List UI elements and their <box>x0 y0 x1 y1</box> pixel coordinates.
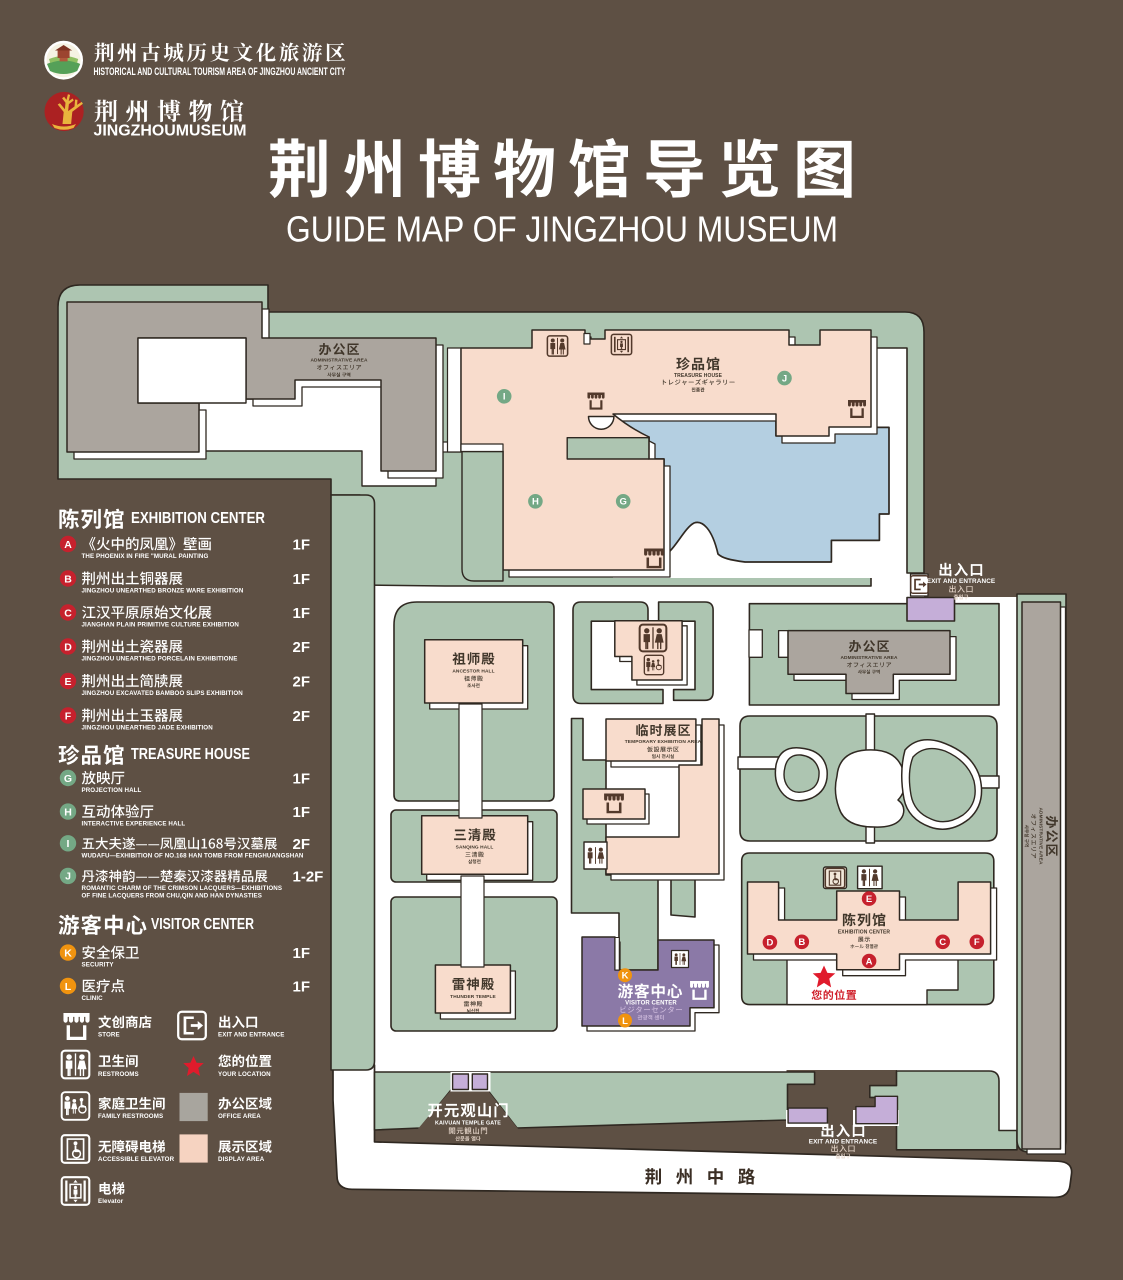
svg-text:INTERACTIVE EXPERIENCE HALL: INTERACTIVE EXPERIENCE HALL <box>82 821 186 828</box>
svg-text:L: L <box>622 1016 628 1027</box>
svg-text:SECURITY: SECURITY <box>82 962 115 969</box>
svg-text:GUIDE MAP OF JINGZHOU MUSEUM: GUIDE MAP OF JINGZHOU MUSEUM <box>286 209 838 250</box>
svg-text:RESTROOMS: RESTROOMS <box>98 1071 139 1078</box>
svg-text:VISITOR CENTER: VISITOR CENTER <box>625 1001 677 1007</box>
svg-text:E: E <box>866 894 872 905</box>
svg-text:JINGZHOUMUSEUM: JINGZHOUMUSEUM <box>94 123 247 140</box>
svg-text:2F: 2F <box>293 674 311 691</box>
svg-text:F: F <box>974 937 980 948</box>
svg-text:EXIT AND ENTRANCE: EXIT AND ENTRANCE <box>809 1139 878 1146</box>
svg-text:1F: 1F <box>293 804 311 821</box>
svg-text:ADMINISTRATIVE AREA: ADMINISTRATIVE AREA <box>1038 807 1044 864</box>
svg-text:THUNDER TEMPLE: THUNDER TEMPLE <box>450 994 496 1000</box>
svg-text:F: F <box>65 710 72 722</box>
svg-text:CLINIC: CLINIC <box>82 995 104 1002</box>
svg-text:I: I <box>503 392 506 403</box>
svg-text:JINGZHOU EXCAVATED BAMBOO SLIP: JINGZHOU EXCAVATED BAMBOO SLIPS EXHIBITI… <box>82 690 244 697</box>
svg-text:H: H <box>64 806 72 818</box>
svg-text:JINGZHOU UNEARTHED BRONZE WARE: JINGZHOU UNEARTHED BRONZE WARE EXHIBITIO… <box>82 588 244 595</box>
svg-text:WUDAFU—EXHIBITION OF NO.168 HA: WUDAFU—EXHIBITION OF NO.168 HAN TOMB FRO… <box>82 852 304 859</box>
svg-text:K: K <box>64 947 72 959</box>
svg-text:A: A <box>866 956 873 967</box>
svg-text:JINGZHOU UNEARTHED PORCELAIN E: JINGZHOU UNEARTHED PORCELAIN EXHIBITIONE <box>82 656 238 663</box>
svg-text:A: A <box>64 539 72 551</box>
svg-text:SANQING HALL: SANQING HALL <box>456 845 494 851</box>
svg-text:OF FINE LACQUERS FROM CHU,QIN: OF FINE LACQUERS FROM CHU,QIN AND HAN DY… <box>82 892 262 899</box>
svg-text:B: B <box>64 573 72 585</box>
svg-text:STORE: STORE <box>98 1032 120 1039</box>
svg-text:Elevator: Elevator <box>98 1198 124 1205</box>
svg-text:YOUR LOCATION: YOUR LOCATION <box>218 1071 271 1078</box>
svg-text:EXHIBITION CENTER: EXHIBITION CENTER <box>131 510 265 527</box>
svg-text:ANCESTOR HALL: ANCESTOR HALL <box>452 669 494 675</box>
svg-text:2F: 2F <box>293 836 311 853</box>
svg-text:E: E <box>64 676 71 688</box>
svg-text:EXIT AND ENTRANCE: EXIT AND ENTRANCE <box>218 1032 284 1039</box>
svg-text:FAMILY RESTROOMS: FAMILY RESTROOMS <box>98 1113 163 1120</box>
svg-text:D: D <box>64 641 72 653</box>
svg-text:B: B <box>798 937 805 948</box>
svg-text:JINGZHOU UNEARTHED JADE EXHIBI: JINGZHOU UNEARTHED JADE EXHIBITION <box>82 725 214 732</box>
svg-text:ROMANTIC CHARM OF THE CRIMSON: ROMANTIC CHARM OF THE CRIMSON LACQUERS—E… <box>82 885 283 892</box>
svg-text:VISITOR CENTER: VISITOR CENTER <box>151 916 254 933</box>
svg-text:I: I <box>67 838 70 850</box>
svg-text:OFFICE AREA: OFFICE AREA <box>218 1113 261 1120</box>
svg-text:KAIVUAN TEMPLE GATE: KAIVUAN TEMPLE GATE <box>435 1121 501 1127</box>
svg-text:1F: 1F <box>293 979 311 996</box>
svg-text:ADMINISTRATIVE AREA: ADMINISTRATIVE AREA <box>840 655 897 661</box>
svg-text:PROJECTION HALL: PROJECTION HALL <box>82 787 142 794</box>
svg-text:J: J <box>782 374 787 385</box>
svg-text:THE PHOENIX IN FIRE "MURAL PAI: THE PHOENIX IN FIRE "MURAL PAINTING <box>82 553 209 560</box>
svg-text:TEMPORARY EXHIBITION AREA: TEMPORARY EXHIBITION AREA <box>625 739 702 745</box>
svg-text:1-2F: 1-2F <box>293 868 324 885</box>
svg-text:2F: 2F <box>293 708 311 725</box>
svg-text:ACCESSIBLE ELEVATOR: ACCESSIBLE ELEVATOR <box>98 1156 175 1163</box>
svg-text:TREASURE HOUSE: TREASURE HOUSE <box>131 746 250 763</box>
svg-text:K: K <box>622 971 629 982</box>
svg-text:1F: 1F <box>293 537 311 554</box>
svg-text:L: L <box>65 981 72 993</box>
svg-text:EXHIBITION CENTER: EXHIBITION CENTER <box>838 930 891 936</box>
svg-text:EXIT AND ENTRANCE: EXIT AND ENTRANCE <box>927 578 996 585</box>
svg-text:C: C <box>939 937 946 948</box>
svg-text:DISPLAY AREA: DISPLAY AREA <box>218 1156 265 1163</box>
svg-text:D: D <box>766 938 773 949</box>
svg-text:G: G <box>620 497 627 508</box>
svg-text:TREASURE HOUSE: TREASURE HOUSE <box>674 373 723 379</box>
svg-text:C: C <box>64 607 72 619</box>
svg-text:1F: 1F <box>293 571 311 588</box>
svg-text:1F: 1F <box>293 771 311 788</box>
svg-text:2F: 2F <box>293 639 311 656</box>
svg-text:ADMINISTRATIVE AREA: ADMINISTRATIVE AREA <box>310 358 367 364</box>
svg-text:G: G <box>64 773 72 785</box>
svg-text:H: H <box>532 497 539 508</box>
svg-text:JIANGHAN PLAIN PRIMITIVE CULTU: JIANGHAN PLAIN PRIMITIVE CULTURE EXHIBIT… <box>82 622 240 629</box>
svg-text:HISTORICAL AND CULTURAL TOURIS: HISTORICAL AND CULTURAL TOURISM AREA OF … <box>94 66 346 78</box>
svg-text:J: J <box>65 871 71 883</box>
svg-text:1F: 1F <box>293 945 311 962</box>
svg-text:1F: 1F <box>293 605 311 622</box>
